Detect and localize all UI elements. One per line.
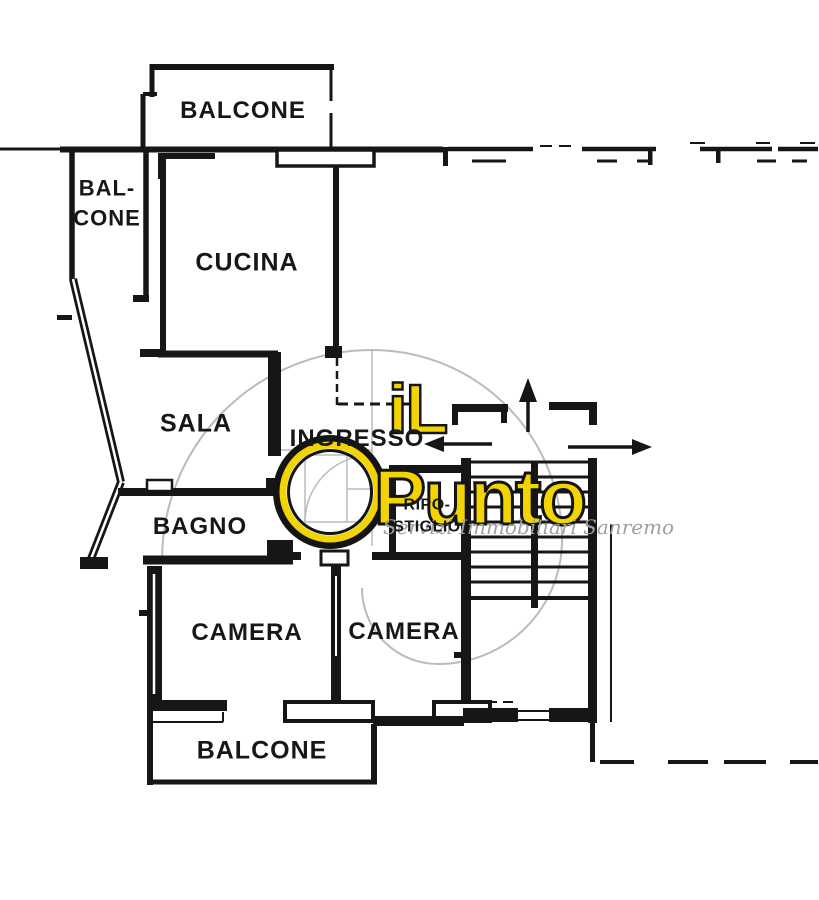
room-label-line: BAL- xyxy=(73,173,141,203)
bathroom-walls xyxy=(143,540,293,562)
north-facade-wall xyxy=(0,143,818,166)
room-label-bagno: BAGNO xyxy=(153,513,247,541)
entrance-walls xyxy=(338,402,597,425)
hallway-south-wall xyxy=(293,549,463,565)
room-label-balcone-top: BALCONE xyxy=(180,97,306,125)
room-label-line: RIPO- xyxy=(393,494,461,516)
slanted-west-wall xyxy=(57,279,121,569)
door-jamb xyxy=(147,480,172,491)
room-label-balcone-bottom: BALCONE xyxy=(197,737,328,766)
room-label-camera-right: CAMERA xyxy=(348,618,459,646)
window-sill xyxy=(277,150,374,166)
room-label-ingresso: INGRESSO xyxy=(290,425,425,453)
room-label-sala: SALA xyxy=(160,410,232,439)
wall-stub xyxy=(158,153,215,159)
window-sill xyxy=(285,702,373,721)
room-label-cucina: CUCINA xyxy=(195,249,298,278)
room-label-balcone-left: BAL- CONE xyxy=(73,173,141,232)
door-sill xyxy=(321,551,348,565)
room-label-line: STIGLIO xyxy=(393,516,461,538)
floor-plan: iL Punto Servizi Immobiliari Sanremo BAL… xyxy=(0,0,819,900)
room-label-ripostiglio: RIPO- STIGLIO xyxy=(393,494,461,537)
room-label-camera-left: CAMERA xyxy=(191,619,302,647)
kitchen-walls xyxy=(163,155,342,406)
room-label-line: CONE xyxy=(73,203,141,233)
